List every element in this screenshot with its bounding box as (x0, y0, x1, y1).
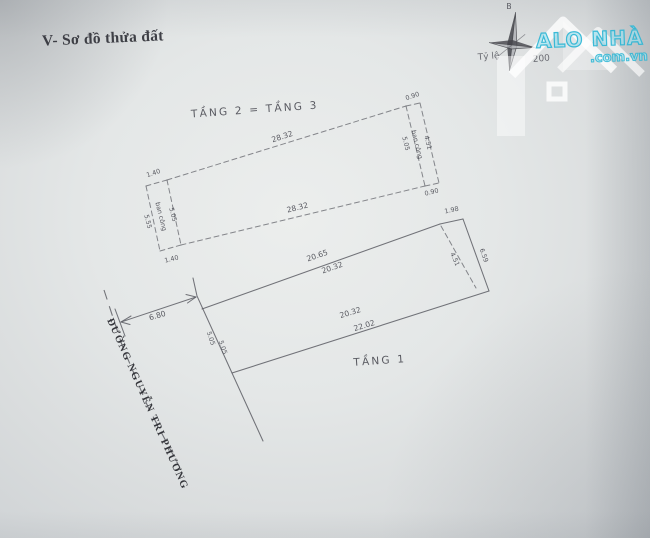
watermark-window (549, 84, 565, 99)
watermark-domain-text: .com.vn (590, 49, 648, 66)
scanned-plot-document: V- Sơ đồ thửa đất TẦNG 2 = TẦNG 3 28.32 … (0, 0, 650, 538)
watermark-house-icon (0, 0, 650, 538)
watermark-brand-text: ALO NHÀ ĐẤT (536, 23, 650, 53)
